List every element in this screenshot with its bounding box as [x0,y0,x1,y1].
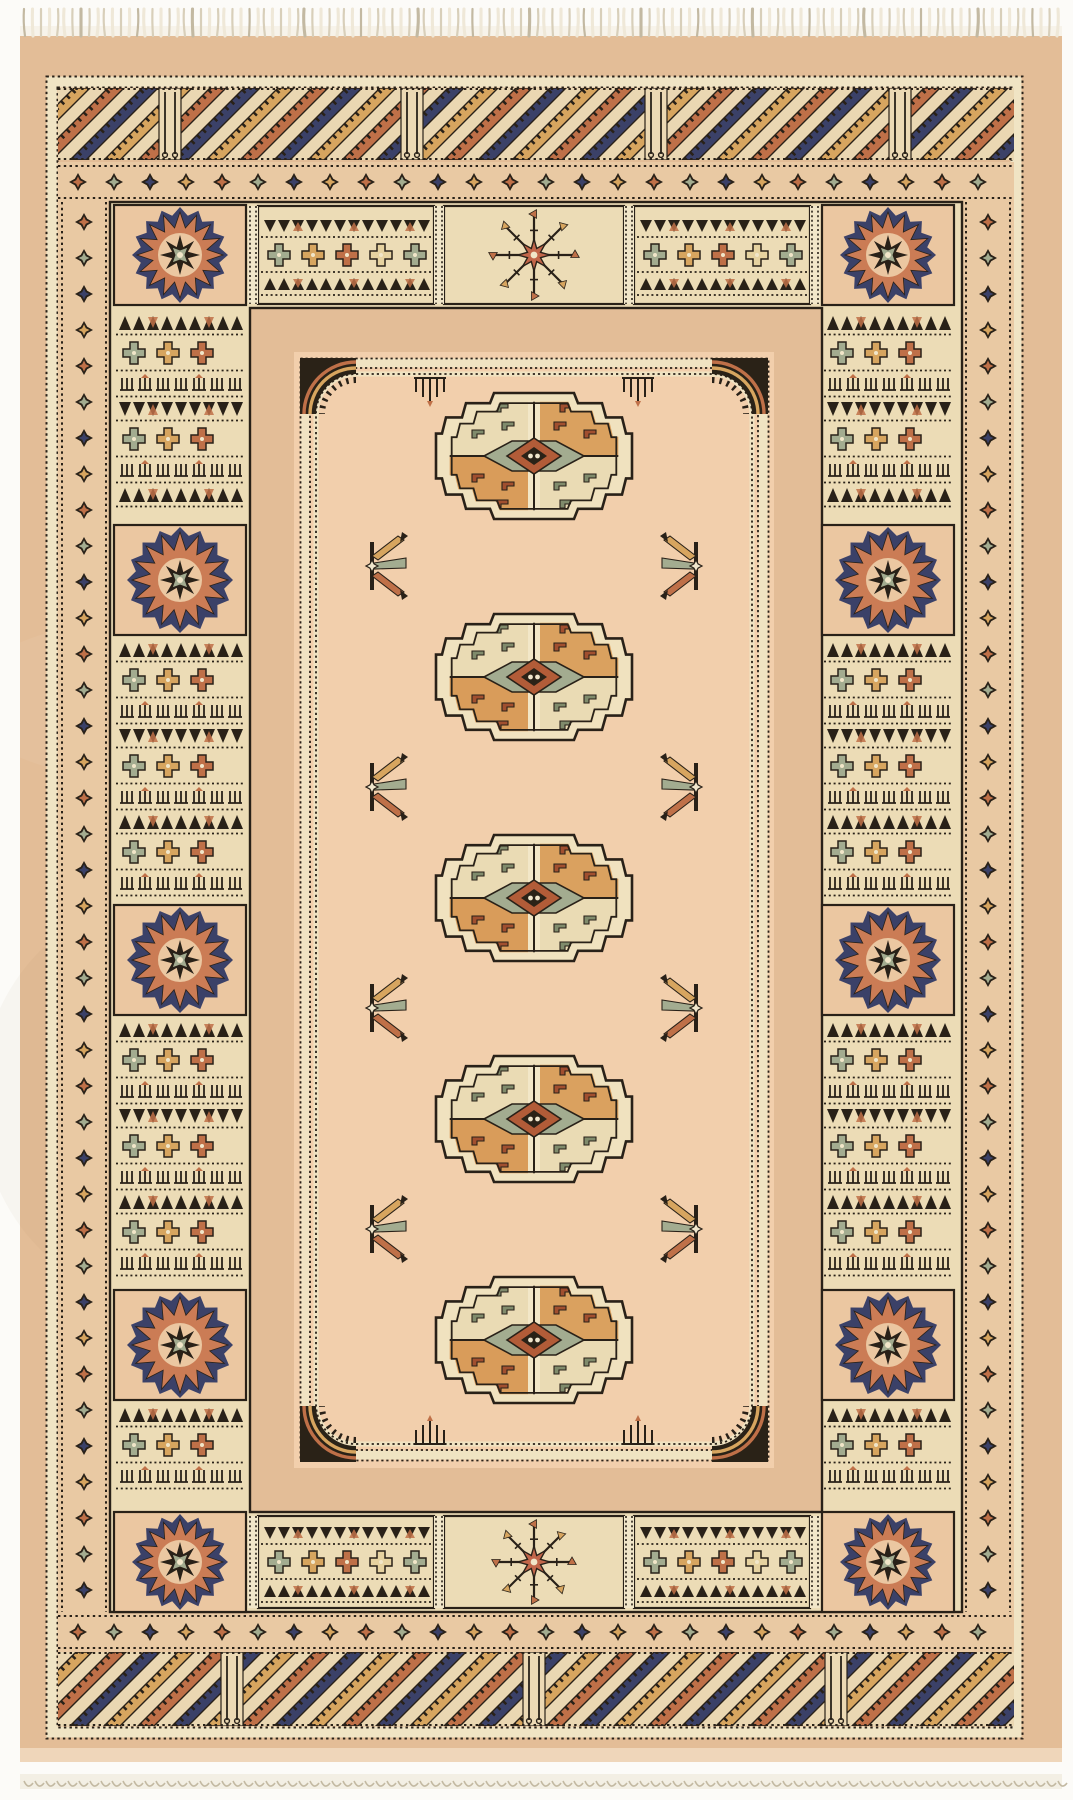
side-sunburst-panel [822,525,954,635]
side-sunburst-panel [114,905,246,1015]
diagonal-border-band-bottom [0,1652,1073,1726]
side-striped-section [824,641,952,896]
corner-sunburst-panel-0 [114,205,246,305]
side-striped-section [116,1406,244,1489]
gul-medallion-3 [436,835,632,961]
side-striped-section [116,641,244,896]
striped-border-panel [258,1516,434,1608]
corner-sunburst-panel-2 [114,1512,246,1612]
diamond-guard-band-3 [962,202,1014,1612]
bottom-border-row [248,1516,820,1608]
side-striped-section [824,1021,952,1276]
rug-canvas [0,0,1073,1800]
side-striped-section [116,314,244,507]
gul-medallion-2 [436,614,632,740]
gul-medallion-5 [436,1277,632,1403]
striped-border-panel [634,206,810,304]
corner-sunburst-panel-1 [822,205,954,305]
side-striped-section [824,314,952,507]
diagonal-border-band-top [0,88,1073,160]
corner-sunburst-panel-3 [822,1512,954,1612]
side-sunburst-panel [822,905,954,1015]
side-sunburst-panel [114,525,246,635]
bottom-fringe [20,1774,1067,1789]
snowflake-star-panel [444,1516,624,1608]
diamond-guard-band-2 [58,202,110,1612]
gul-medallion-4 [436,1056,632,1182]
side-striped-section [116,1021,244,1276]
gul-medallion-1 [436,393,632,519]
diamond-guard-band-0 [58,162,1014,202]
rug-photograph [0,0,1073,1800]
side-striped-section [824,1406,952,1489]
diamond-guard-band-1 [58,1612,1014,1652]
center-field [294,352,774,1468]
snowflake-star-panel [444,206,624,304]
striped-border-panel [258,206,434,304]
striped-border-panel [634,1516,810,1608]
top-border-row [248,206,820,304]
side-sunburst-panel [114,1290,246,1400]
side-sunburst-panel [822,1290,954,1400]
